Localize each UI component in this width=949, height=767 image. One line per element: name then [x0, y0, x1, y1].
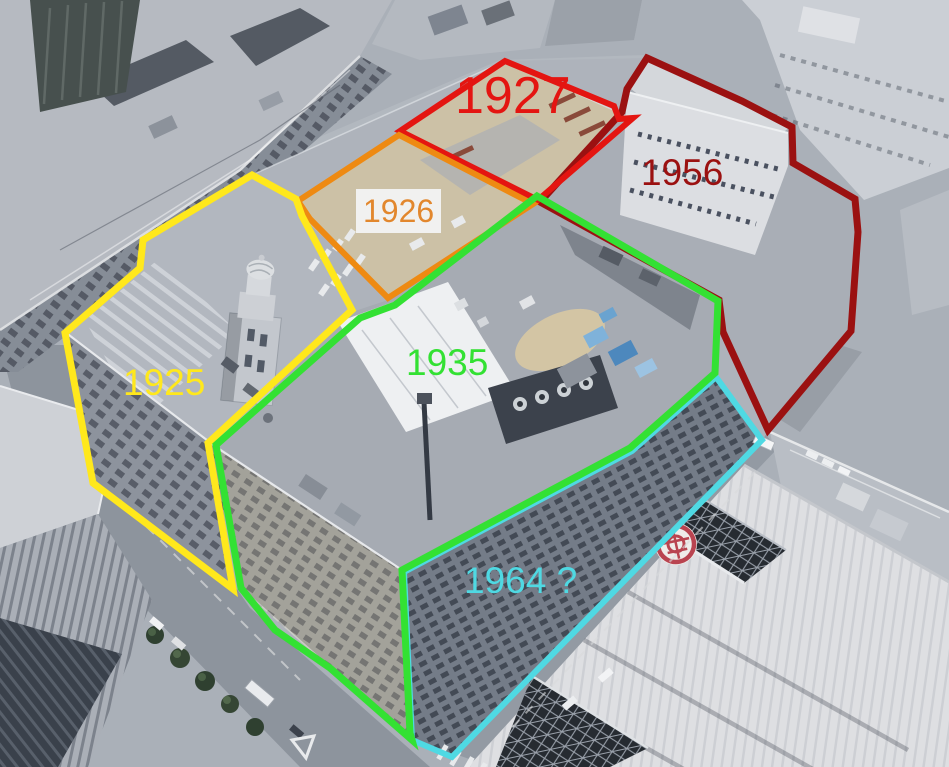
aerial-photo-viewport: 1964 ?19561927192619251935 — [0, 0, 949, 767]
phase-label-1956: 1956 — [641, 154, 723, 191]
phase-label-1926: 1926 — [356, 189, 441, 233]
phase-label-1925: 1925 — [123, 364, 205, 401]
phase-label-1964: 1964 ? — [464, 562, 577, 599]
phase-label-1935: 1935 — [406, 344, 488, 381]
phase-label-1927: 1927 — [455, 70, 571, 122]
